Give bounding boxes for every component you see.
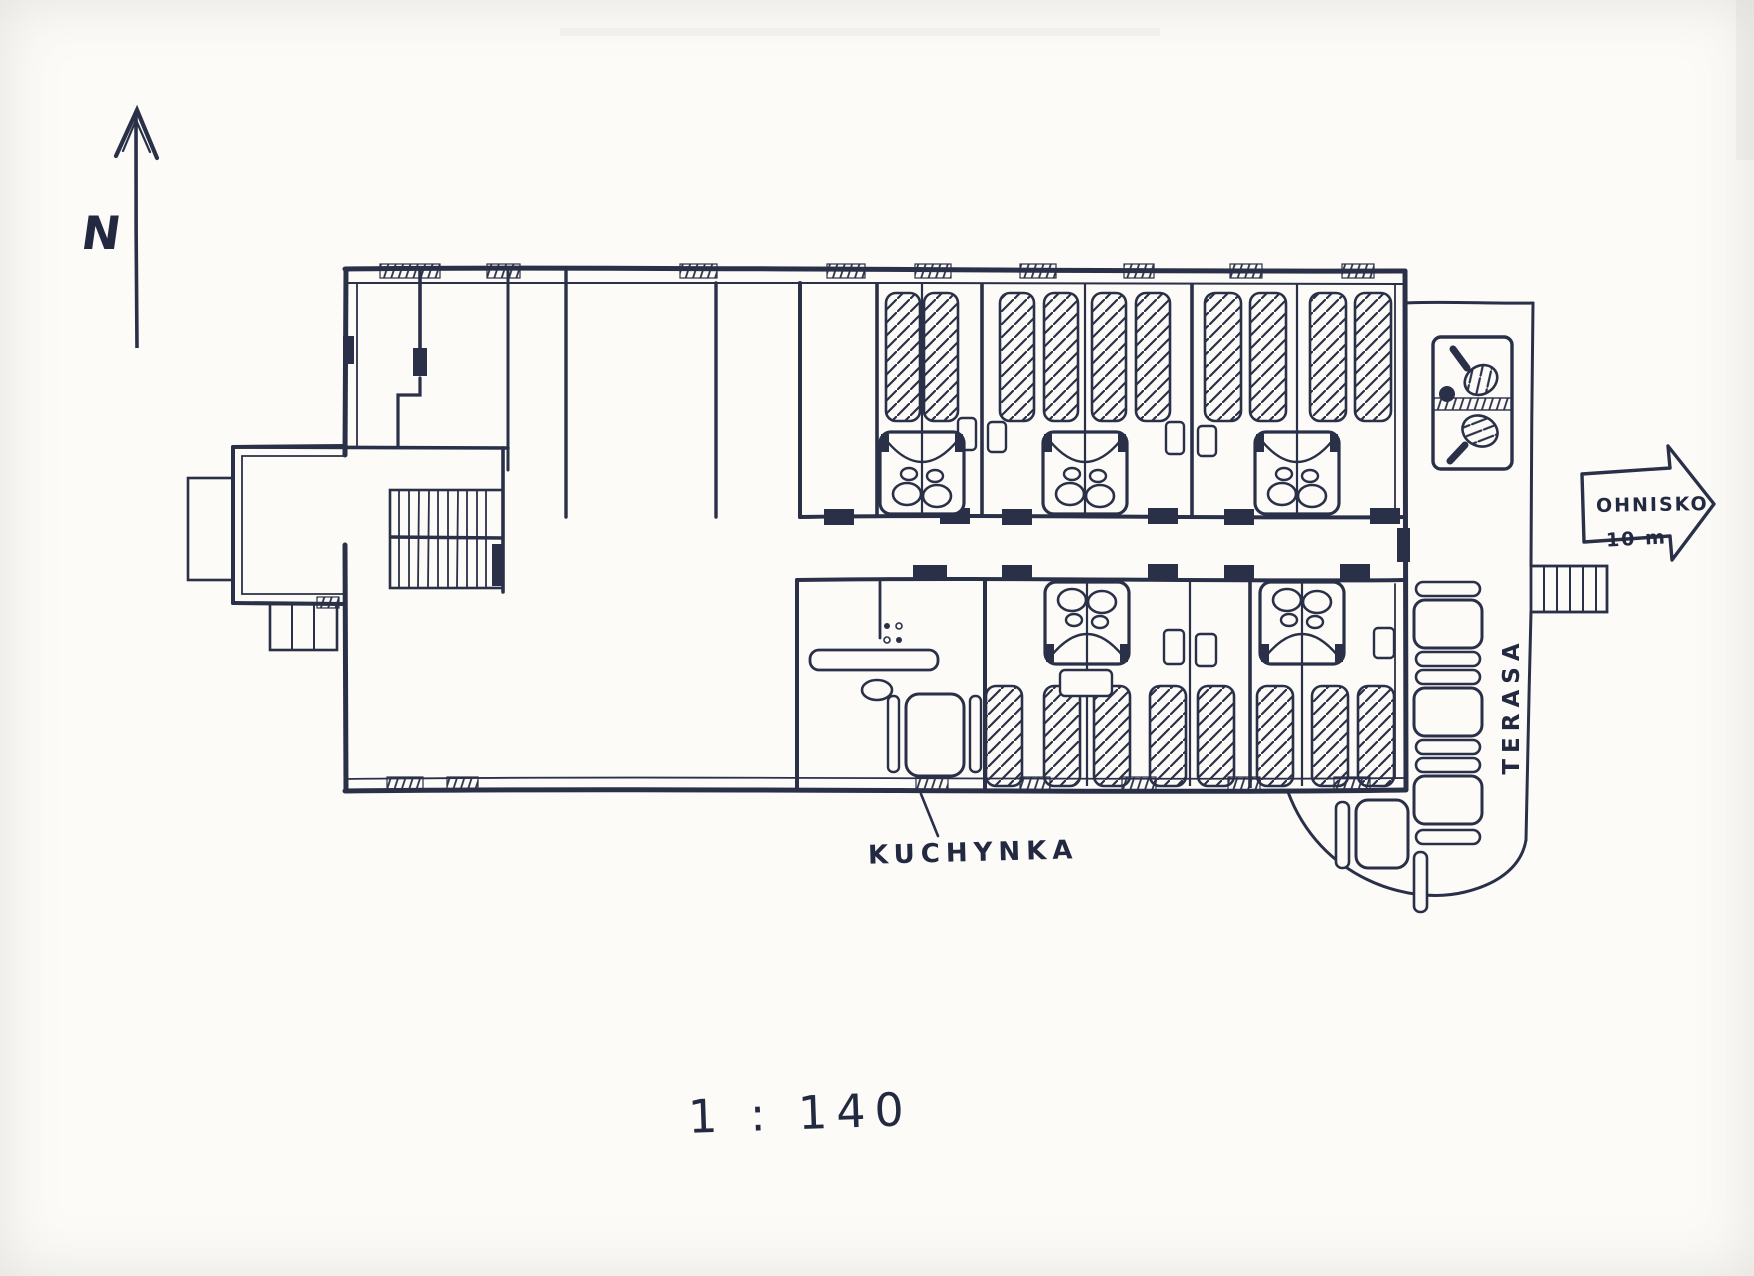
bench-icon xyxy=(1336,802,1349,868)
bed-icon xyxy=(1310,293,1346,421)
bed-icon xyxy=(1000,293,1034,421)
beds-north-row xyxy=(886,293,1391,421)
kitchen-table xyxy=(906,694,964,776)
ping-pong-ball-icon xyxy=(1439,386,1455,402)
ping-pong-table xyxy=(1433,337,1512,469)
kitchen-label: KUCHYNKA xyxy=(868,835,1079,871)
bed-icon xyxy=(986,686,1022,786)
bed-icon xyxy=(886,293,920,421)
terrace-steps xyxy=(1531,566,1607,612)
table-icon xyxy=(1356,800,1408,868)
staircase xyxy=(390,490,503,588)
firepit-label: OHNISKO xyxy=(1596,493,1709,517)
bed-icon xyxy=(1150,686,1186,786)
scale-label: 1 : 140 xyxy=(687,1082,914,1144)
north-label: N xyxy=(78,206,124,260)
bench-icon xyxy=(1416,830,1480,844)
bench-icon xyxy=(1416,740,1480,754)
kitchen-bench xyxy=(888,696,899,772)
stove-burners-icon xyxy=(884,623,902,643)
bed-icon xyxy=(1044,293,1078,421)
bed-icon xyxy=(1257,686,1293,786)
bed-icon xyxy=(924,293,958,421)
firepit-distance-label: 10 m xyxy=(1605,526,1667,551)
scanned-floor-plan-page: N KUCHYNKA TERASA OHNISKO 10 m 1 : 140 xyxy=(0,0,1754,1276)
table-icon xyxy=(1414,776,1482,824)
bed-icon xyxy=(1136,293,1170,421)
kitchen-area xyxy=(797,580,985,790)
exterior-steps xyxy=(270,597,339,650)
bed-icon xyxy=(1312,686,1348,786)
entrance-porch xyxy=(188,446,345,604)
kitchen-bench xyxy=(970,696,981,772)
bench-icon xyxy=(1416,582,1480,596)
bed-icon xyxy=(1355,293,1391,421)
interior-walls-west xyxy=(233,270,800,592)
bench-icon xyxy=(1416,758,1480,772)
door-opening xyxy=(343,336,354,364)
door-opening xyxy=(413,348,427,376)
bed-icon xyxy=(1198,686,1234,786)
terrace-benches-and-tables xyxy=(1414,582,1482,844)
corridor xyxy=(797,516,1405,580)
bed-icon xyxy=(1250,293,1286,421)
terrace-label: TERASA xyxy=(1499,637,1525,774)
bench-icon xyxy=(1416,652,1480,666)
bed-icon xyxy=(1205,293,1241,421)
bed-icon xyxy=(1044,686,1080,786)
kitchen-sink-icon xyxy=(862,680,892,700)
kitchen-leader-line xyxy=(921,794,938,836)
bed-icon xyxy=(1094,686,1130,786)
bed-icon xyxy=(1358,686,1394,786)
bench-icon xyxy=(1416,670,1480,684)
table-icon xyxy=(1414,688,1482,736)
kitchen-counter xyxy=(810,650,938,670)
bed-icon xyxy=(1092,293,1126,421)
table-icon xyxy=(1414,600,1482,648)
bench-icon xyxy=(1414,852,1427,912)
north-arrow-icon xyxy=(116,110,157,348)
